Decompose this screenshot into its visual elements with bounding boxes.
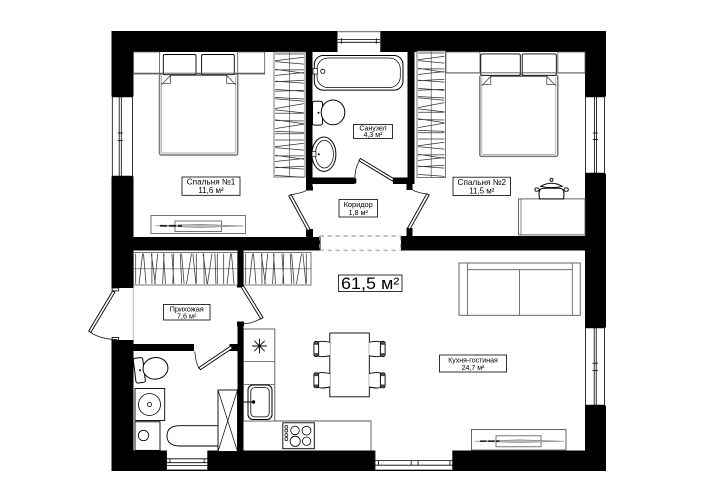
svg-text:11,6 м²: 11,6 м² xyxy=(198,186,224,195)
svg-text:7,6 м²: 7,6 м² xyxy=(177,312,197,321)
svg-text:24,7 м²: 24,7 м² xyxy=(462,365,485,372)
svg-text:61,5 м²: 61,5 м² xyxy=(341,275,400,293)
svg-text:4,3 м²: 4,3 м² xyxy=(364,132,383,139)
svg-text:1,8 м²: 1,8 м² xyxy=(349,208,369,217)
svg-text:Кухня-гостиная: Кухня-гостиная xyxy=(448,357,498,364)
svg-text:11,5 м²: 11,5 м² xyxy=(469,186,495,195)
